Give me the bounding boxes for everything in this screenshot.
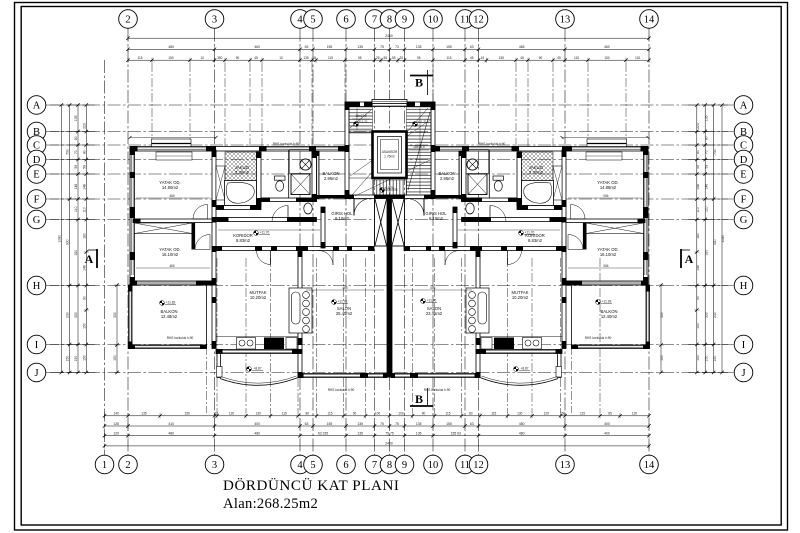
svg-text:330: 330 [66,239,70,245]
svg-text:180: 180 [696,233,700,239]
svg-text:90: 90 [696,296,700,300]
svg-text:135: 135 [141,412,147,416]
svg-text:11: 11 [460,15,470,26]
svg-text:+11.70: +11.70 [384,186,394,190]
svg-text:115: 115 [445,412,450,416]
svg-text:330: 330 [704,312,708,318]
svg-text:150: 150 [713,356,717,362]
svg-text:4: 4 [297,15,303,26]
svg-text:45: 45 [557,56,561,60]
svg-text:120: 120 [544,412,550,416]
svg-text:14.88m2: 14.88m2 [600,185,617,190]
svg-text:95: 95 [358,56,362,60]
svg-text:G: G [740,215,748,226]
svg-text:10: 10 [200,56,204,60]
svg-text:16x17,5: 16x17,5 [355,114,367,118]
svg-text:230: 230 [713,312,717,318]
svg-text:9: 9 [402,15,407,26]
svg-text:150: 150 [82,355,86,361]
svg-text:135: 135 [416,422,422,426]
svg-text:B: B [415,76,423,90]
svg-text:+11.21: +11.21 [417,120,427,124]
svg-text:148: 148 [82,184,86,190]
svg-text:460: 460 [603,194,609,198]
svg-text:120: 120 [113,432,119,436]
svg-text:45: 45 [254,56,258,60]
svg-text:12: 12 [473,460,484,471]
svg-text:120: 120 [229,412,235,416]
svg-text:A: A [85,252,94,266]
svg-text:460: 460 [254,45,260,49]
svg-text:150: 150 [66,356,70,362]
svg-text:1080: 1080 [721,235,725,243]
svg-text:150: 150 [168,56,174,60]
svg-text:59: 59 [74,165,78,169]
svg-text:135: 135 [416,432,422,436]
svg-text:E: E [33,170,39,181]
svg-text:90: 90 [422,412,426,416]
svg-text:400: 400 [604,422,610,426]
svg-text:2400: 2400 [385,442,393,446]
svg-text:I: I [742,340,746,351]
svg-text:+11.70: +11.70 [427,299,437,303]
svg-text:70: 70 [704,150,708,154]
svg-text:90: 90 [539,56,543,60]
svg-text:146: 146 [74,184,78,190]
svg-text:110: 110 [74,206,78,212]
svg-text:63: 63 [470,45,474,49]
svg-text:12.40m2: 12.40m2 [601,314,618,319]
svg-text:350: 350 [217,56,223,60]
svg-text:RHS korkuluk h:90: RHS korkuluk h:90 [585,336,612,340]
svg-text:13: 13 [560,460,571,471]
svg-text:150: 150 [74,356,78,362]
svg-text:150: 150 [696,323,700,329]
svg-text:63: 63 [305,45,309,49]
svg-text:F: F [741,195,747,206]
svg-text:460: 460 [604,45,610,49]
svg-text:460: 460 [603,264,609,268]
svg-text:460: 460 [169,264,175,268]
svg-text:10: 10 [279,56,283,60]
svg-text:146: 146 [704,184,708,190]
svg-text:115: 115 [137,56,142,60]
svg-text:12: 12 [473,15,484,26]
svg-text:730: 730 [713,149,717,155]
svg-text:95: 95 [417,56,421,60]
svg-text:330: 330 [660,312,664,318]
svg-text:8: 8 [387,460,392,471]
svg-text:J: J [741,368,745,379]
svg-text:14: 14 [644,15,655,26]
svg-text:135: 135 [499,56,505,60]
svg-text:155: 155 [446,422,452,426]
svg-text:115: 115 [580,412,585,416]
svg-text:148: 148 [696,184,700,190]
svg-text:150: 150 [82,323,86,329]
svg-text:63: 63 [305,422,309,426]
svg-text:59: 59 [696,165,700,169]
svg-text:63: 63 [470,422,474,426]
svg-text:8.83m2: 8.83m2 [528,238,543,243]
svg-text:+11.93: +11.93 [602,300,612,304]
svg-text:+11.70: +11.70 [260,231,270,235]
svg-text:150: 150 [604,56,610,60]
svg-text:480: 480 [519,432,525,436]
svg-text:115: 115 [327,412,332,416]
svg-text:115: 115 [574,56,579,60]
svg-text:730: 730 [66,149,70,155]
svg-text:25.45m2: 25.45m2 [336,311,353,316]
svg-text:460: 460 [430,286,436,290]
svg-text:90: 90 [82,296,86,300]
svg-text:115: 115 [635,56,640,60]
svg-text:115: 115 [491,412,496,416]
svg-text:150: 150 [560,412,566,416]
svg-text:A: A [33,101,41,112]
svg-text:2: 2 [125,460,130,471]
svg-text:330: 330 [74,312,78,318]
svg-text:RHS korkuluk h:90: RHS korkuluk h:90 [167,336,194,340]
svg-text:330: 330 [713,239,717,245]
svg-text:330: 330 [113,312,117,318]
svg-text:223: 223 [82,123,86,129]
svg-text:5: 5 [310,460,315,471]
svg-text:135: 135 [303,56,309,60]
svg-text:14: 14 [644,460,655,471]
svg-text:8: 8 [387,15,392,26]
svg-text:1: 1 [102,460,107,471]
svg-text:155: 155 [327,45,333,49]
svg-text:+8.87: +8.87 [253,367,261,371]
svg-text:80: 80 [305,412,309,416]
svg-text:155 63: 155 63 [451,432,461,436]
svg-text:80: 80 [469,412,473,416]
svg-text:110: 110 [696,207,700,213]
svg-text:90: 90 [236,56,240,60]
svg-text:7: 7 [372,15,377,26]
svg-text:465: 465 [519,45,525,49]
svg-text:115: 115 [282,412,287,416]
svg-text:10: 10 [428,460,439,471]
svg-text:DÖRDÜNCÜ KAT PLANI: DÖRDÜNCÜ KAT PLANI [223,477,400,494]
svg-text:150: 150 [660,355,664,361]
svg-text:11: 11 [460,460,470,471]
svg-text:15: 15 [312,56,316,60]
svg-text:Alan:268.25m2: Alan:268.25m2 [223,496,318,512]
svg-text:480: 480 [254,432,260,436]
svg-text:140: 140 [114,412,120,416]
svg-text:+11.70: +11.70 [338,300,348,304]
svg-text:400: 400 [254,422,260,426]
svg-text:480: 480 [168,45,174,49]
svg-text:G: G [33,215,41,226]
svg-text:55: 55 [392,56,396,60]
svg-text:80: 80 [704,136,708,140]
svg-text:135: 135 [416,45,422,49]
svg-text:8.10m2: 8.10m2 [429,216,444,221]
svg-text:A: A [740,101,748,112]
svg-text:RHS korkuluk h:90: RHS korkuluk h:90 [273,142,300,146]
svg-text:150: 150 [113,355,117,361]
svg-text:E: E [740,170,746,181]
svg-text:15: 15 [481,56,485,60]
svg-text:23.45m2: 23.45m2 [426,311,443,316]
svg-text:3.30m2: 3.30m2 [235,170,250,175]
svg-text:B: B [415,392,423,406]
svg-text:150: 150 [696,355,700,361]
svg-text:135: 135 [357,432,363,436]
svg-text:480: 480 [168,432,174,436]
svg-text:85: 85 [608,412,612,416]
svg-text:45: 45 [520,56,524,60]
svg-text:63 155: 63 155 [318,432,328,436]
svg-text:6: 6 [343,15,348,26]
svg-text:A: A [685,252,694,266]
svg-text:130: 130 [517,412,523,416]
svg-text:150: 150 [185,412,191,416]
svg-text:+11.83: +11.83 [166,301,176,305]
svg-text:130: 130 [256,412,262,416]
svg-text:14.90m2: 14.90m2 [162,185,179,190]
svg-text:25: 25 [376,56,380,60]
svg-text:ASANSÖR: ASANSÖR [382,150,398,154]
svg-text:RHS korkuluk h:90: RHS korkuluk h:90 [424,388,451,392]
svg-text:150: 150 [704,356,708,362]
svg-text:3: 3 [212,460,217,471]
svg-text:+11.70: +11.70 [525,231,535,235]
svg-text:16.10m2: 16.10m2 [162,252,179,257]
svg-text:10: 10 [428,15,439,26]
svg-text:128: 128 [113,422,119,426]
svg-text:135: 135 [357,422,363,426]
svg-text:3.30m2: 3.30m2 [529,170,544,175]
svg-text:135: 135 [74,115,78,121]
svg-text:28x16,5: 28x16,5 [413,145,425,149]
svg-text:80: 80 [696,150,700,154]
svg-text:90: 90 [353,412,357,416]
svg-text:80: 80 [74,136,78,140]
svg-text:13: 13 [560,15,571,26]
svg-text:59: 59 [82,165,86,169]
svg-text:5: 5 [310,15,315,26]
svg-text:180: 180 [82,233,86,239]
svg-text:RHS korkuluk h:90: RHS korkuluk h:90 [479,142,506,146]
svg-text:146: 146 [696,265,700,271]
svg-text:155: 155 [446,45,452,49]
svg-text:2: 2 [125,15,130,26]
svg-text:9: 9 [402,460,407,471]
svg-text:120: 120 [632,412,638,416]
svg-text:8.83m2: 8.83m2 [236,238,251,243]
svg-text:45: 45 [470,56,474,60]
svg-text:75: 75 [395,422,399,426]
svg-text:25: 25 [399,56,403,60]
svg-text:135: 135 [704,115,708,121]
svg-text:73: 73 [395,45,399,49]
svg-text:80: 80 [82,150,86,154]
svg-text:+8.87: +8.87 [520,367,528,371]
svg-text:J: J [34,368,38,379]
svg-text:59: 59 [704,165,708,169]
svg-text:480: 480 [519,422,525,426]
svg-text:RHS korkuluk h:90: RHS korkuluk h:90 [328,388,355,392]
svg-text:460: 460 [342,286,348,290]
svg-text:F: F [34,195,40,206]
svg-text:2.95m2: 2.95m2 [324,176,339,181]
svg-text:155: 155 [327,422,333,426]
svg-text:115: 115 [446,56,451,60]
svg-text:75 75: 75 75 [385,432,394,436]
svg-text:400: 400 [604,432,610,436]
svg-text:7: 7 [372,460,377,471]
svg-text:2.95m2: 2.95m2 [440,176,455,181]
svg-text:H: H [740,281,748,292]
svg-text:10.20m2: 10.20m2 [512,295,529,300]
svg-text:460: 460 [169,194,175,198]
svg-text:110: 110 [82,207,86,213]
svg-text:135: 135 [357,45,363,49]
svg-text:75: 75 [380,45,384,49]
svg-text:12.48m2: 12.48m2 [161,314,178,319]
svg-text:1.76m2: 1.76m2 [384,155,395,159]
svg-text:110: 110 [704,206,708,212]
svg-text:115: 115 [328,56,333,60]
svg-text:I: I [35,340,39,351]
svg-text:3: 3 [212,15,217,26]
svg-text:4: 4 [297,460,303,471]
svg-text:223: 223 [696,123,700,129]
svg-text:100: 100 [375,412,381,416]
svg-text:230: 230 [66,312,70,318]
svg-text:410: 410 [168,422,174,426]
svg-text:2460: 2460 [385,34,393,38]
svg-text:70: 70 [74,150,78,154]
svg-text:75: 75 [380,422,384,426]
svg-text:10.20m2: 10.20m2 [250,295,267,300]
svg-text:320: 320 [74,250,78,256]
svg-text:+11.21: +11.21 [358,120,368,124]
svg-text:55: 55 [383,56,387,60]
svg-text:100: 100 [398,412,404,416]
svg-text:8.10m2: 8.10m2 [335,216,350,221]
svg-text:H: H [33,281,41,292]
svg-text:1080: 1080 [57,235,61,243]
svg-text:115: 115 [213,412,218,416]
svg-text:16.10m2: 16.10m2 [600,252,617,257]
svg-text:6: 6 [343,460,348,471]
svg-text:320: 320 [704,250,708,256]
